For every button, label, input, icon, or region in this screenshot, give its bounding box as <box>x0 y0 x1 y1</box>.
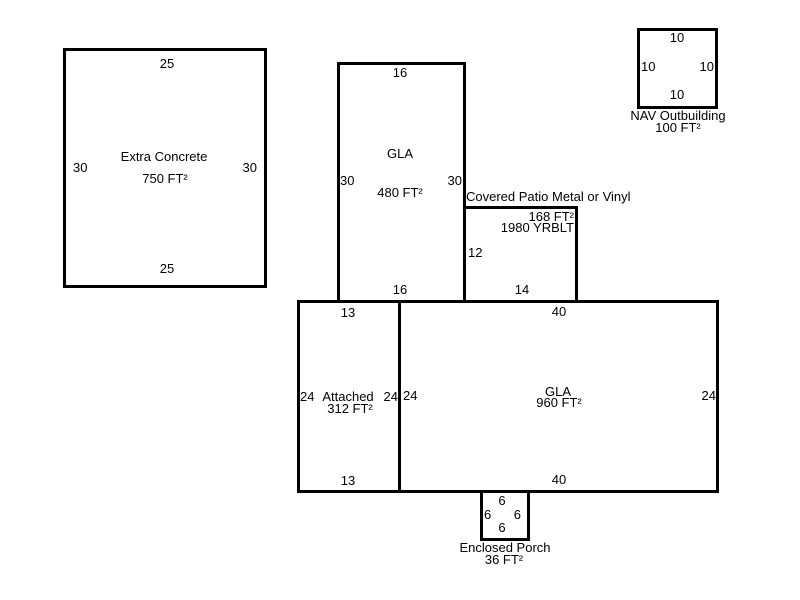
extra-concrete-dim-bottom: 25 <box>160 262 174 275</box>
gla-upper-dim-bottom: 16 <box>393 283 407 296</box>
gla-main-dim-right: 24 <box>702 389 716 402</box>
extra-concrete-outline <box>63 48 267 288</box>
covered-patio-dim-bottom: 14 <box>515 283 529 296</box>
gla-upper-dim-left: 30 <box>340 174 354 187</box>
attached-dim-bottom: 13 <box>341 474 355 487</box>
gla-main-dim-bottom: 40 <box>552 473 566 486</box>
extra-concrete-name: Extra Concrete <box>121 150 208 163</box>
nav-outbuilding-dim-top: 10 <box>670 31 684 44</box>
attached-dim-top: 13 <box>341 306 355 319</box>
extra-concrete-dim-right: 30 <box>243 161 257 174</box>
enclosed-porch-dim-right: 6 <box>514 508 521 521</box>
attached-dim-left: 24 <box>300 390 314 403</box>
nav-outbuilding-dim-right: 10 <box>700 60 714 73</box>
gla-main-area: 960 FT² <box>536 396 582 409</box>
covered-patio-year-built: 1980 YRBLT <box>501 221 574 234</box>
covered-patio-dim-left: 12 <box>468 246 482 259</box>
extra-concrete-dim-top: 25 <box>160 57 174 70</box>
attached-area: 312 FT² <box>327 402 373 415</box>
extra-concrete-dim-left: 30 <box>73 161 87 174</box>
gla-upper-dim-right: 30 <box>448 174 462 187</box>
attached-dim-right: 24 <box>384 390 398 403</box>
enclosed-porch-dim-top: 6 <box>498 494 505 507</box>
covered-patio-name: Covered Patio Metal or Vinyl <box>466 190 631 203</box>
gla-main-dim-left: 24 <box>403 389 417 402</box>
nav-outbuilding-area: 100 FT² <box>655 121 701 134</box>
extra-concrete-area: 750 FT² <box>142 172 188 185</box>
gla-upper-name: GLA <box>387 147 413 160</box>
nav-outbuilding-dim-bottom: 10 <box>670 88 684 101</box>
gla-upper-dim-top: 16 <box>393 66 407 79</box>
enclosed-porch-area: 36 FT² <box>485 553 523 566</box>
enclosed-porch-dim-left: 6 <box>484 508 491 521</box>
property-sketch-canvas: 25 Extra Concrete 30 30 750 FT² 25 16 GL… <box>0 0 800 600</box>
enclosed-porch-dim-bottom: 6 <box>498 521 505 534</box>
gla-main-dim-top: 40 <box>552 305 566 318</box>
gla-upper-area: 480 FT² <box>377 186 423 199</box>
nav-outbuilding-dim-left: 10 <box>641 60 655 73</box>
